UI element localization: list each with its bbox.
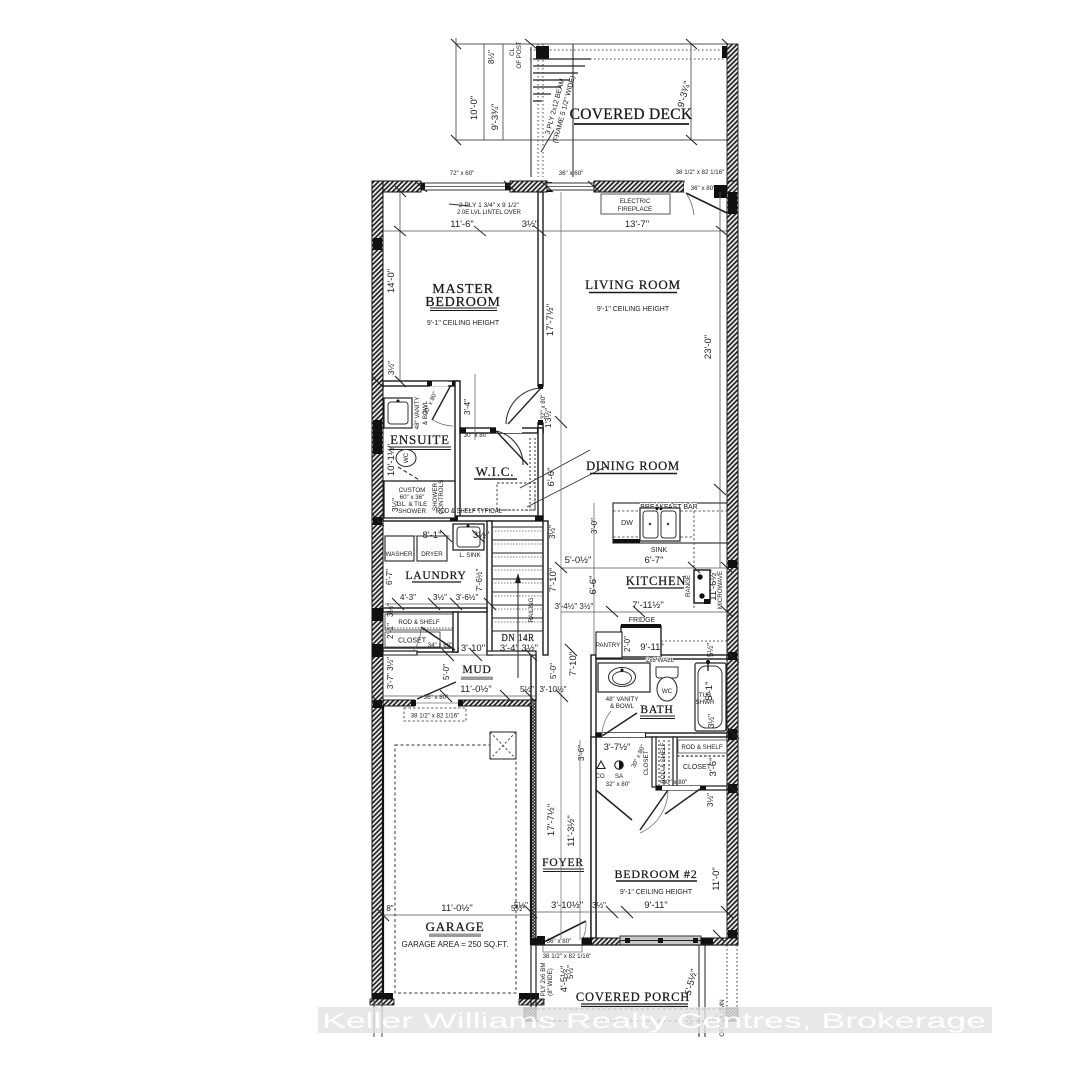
svg-text:MUD: MUD bbox=[462, 664, 491, 676]
svg-text:GARAGE: GARAGE bbox=[426, 919, 485, 934]
svg-text:11'-6": 11'-6" bbox=[450, 219, 474, 230]
svg-text:9'-1" CEILING HEIGHT: 9'-1" CEILING HEIGHT bbox=[597, 306, 670, 313]
svg-text:3'-0": 3'-0" bbox=[590, 518, 599, 534]
svg-text:6'-7": 6'-7" bbox=[385, 569, 394, 585]
svg-text:5'-0": 5'-0" bbox=[549, 663, 558, 679]
svg-text:11'-6½": 11'-6½" bbox=[708, 569, 719, 600]
svg-text:7'-6½": 7'-6½" bbox=[475, 569, 484, 592]
svg-text:6'-7": 6'-7" bbox=[645, 555, 664, 566]
svg-text:SHOWER: SHOWER bbox=[398, 508, 426, 515]
svg-text:17'-7½": 17'-7½" bbox=[546, 804, 557, 836]
svg-text:Keller Williams Realty Centres: Keller Williams Realty Centres, Brokerag… bbox=[322, 1009, 986, 1033]
svg-text:36" x 80": 36" x 80" bbox=[547, 938, 572, 945]
svg-text:DINING ROOM: DINING ROOM bbox=[586, 459, 680, 473]
svg-text:ROD & SHELF: ROD & SHELF bbox=[398, 619, 439, 626]
svg-text:BEDROOM #2: BEDROOM #2 bbox=[614, 867, 697, 881]
svg-text:8½": 8½" bbox=[487, 50, 496, 64]
svg-text:5½": 5½" bbox=[566, 965, 575, 979]
svg-text:CUSTOM: CUSTOM bbox=[399, 487, 426, 494]
svg-text:ELECTRIC: ELECTRIC bbox=[620, 198, 651, 205]
svg-text:5½": 5½" bbox=[706, 643, 715, 657]
svg-text:FRIDGE: FRIDGE bbox=[629, 617, 656, 624]
svg-text:2'-1": 2'-1" bbox=[386, 623, 395, 639]
svg-text:11'-3½": 11'-3½" bbox=[566, 815, 577, 846]
svg-text:CL: CL bbox=[509, 47, 516, 55]
svg-text:FOYER: FOYER bbox=[542, 857, 584, 869]
svg-text:3'-4" 3½": 3'-4" 3½" bbox=[500, 643, 538, 654]
svg-text:6'-6": 6'-6" bbox=[588, 576, 599, 595]
svg-text:2.0E LVL LINTEL OVER: 2.0E LVL LINTEL OVER bbox=[457, 209, 521, 216]
svg-text:LAUNDRY: LAUNDRY bbox=[405, 570, 466, 582]
svg-text:3'-4½" 3½": 3'-4½" 3½" bbox=[555, 602, 594, 611]
svg-text:13'-7": 13'-7" bbox=[625, 219, 649, 230]
svg-text:ENSUITE: ENSUITE bbox=[390, 432, 450, 447]
svg-text:OF POST: OF POST bbox=[516, 41, 523, 68]
svg-text:3½": 3½" bbox=[433, 593, 447, 602]
svg-text:WC: WC bbox=[662, 688, 673, 695]
svg-text:60" x 36": 60" x 36" bbox=[400, 494, 425, 501]
svg-text:11'-0½": 11'-0½" bbox=[460, 684, 491, 695]
svg-text:3'-6½": 3'-6½" bbox=[456, 593, 479, 602]
svg-text:32" x 80": 32" x 80" bbox=[606, 781, 631, 788]
svg-text:4'-3": 4'-3" bbox=[400, 593, 416, 602]
svg-text:7'-10": 7'-10" bbox=[568, 652, 579, 676]
svg-text:3½": 3½" bbox=[522, 219, 539, 230]
svg-text:48" VANITY: 48" VANITY bbox=[414, 397, 421, 430]
svg-text:3'-7½": 3'-7½" bbox=[604, 742, 631, 753]
svg-text:5'-0½": 5'-0½" bbox=[565, 555, 592, 566]
svg-text:3½": 3½" bbox=[592, 901, 606, 910]
svg-text:5'-0": 5'-0" bbox=[442, 664, 451, 680]
svg-text:3'-10½": 3'-10½" bbox=[539, 685, 566, 694]
svg-text:PANTRY: PANTRY bbox=[596, 642, 621, 649]
svg-text:14'-0": 14'-0" bbox=[386, 269, 397, 293]
svg-text:38 1/2" x 82 1/16": 38 1/2" x 82 1/16" bbox=[411, 713, 460, 720]
svg-text:2'-0": 2'-0" bbox=[623, 636, 632, 652]
svg-text:9'-11": 9'-11" bbox=[640, 642, 664, 653]
svg-text:CLOSET: CLOSET bbox=[643, 750, 650, 775]
svg-text:6'-6": 6'-6" bbox=[546, 468, 557, 487]
svg-text:3'-10½": 3'-10½" bbox=[551, 900, 583, 911]
svg-text:8'-1": 8'-1" bbox=[423, 530, 442, 541]
svg-text:4 PLY 2x6 BM: 4 PLY 2x6 BM bbox=[540, 963, 547, 1002]
svg-text:48" VANITY: 48" VANITY bbox=[606, 696, 639, 703]
svg-text:& BOWL: & BOWL bbox=[610, 703, 635, 710]
svg-text:3½": 3½" bbox=[706, 793, 715, 807]
svg-text:FIREPLACE: FIREPLACE bbox=[618, 206, 652, 213]
svg-text:9'-11": 9'-11" bbox=[644, 900, 668, 911]
svg-text:ROD & SHELF: ROD & SHELF bbox=[681, 744, 722, 751]
svg-text:38 1/2" x 82 1/16": 38 1/2" x 82 1/16" bbox=[543, 953, 592, 960]
svg-text:GARAGE AREA = 250 SQ.FT.: GARAGE AREA = 250 SQ.FT. bbox=[402, 940, 509, 949]
svg-text:72" x 60": 72" x 60" bbox=[450, 170, 475, 177]
svg-text:WASHER: WASHER bbox=[386, 551, 413, 558]
svg-text:3½": 3½" bbox=[386, 603, 395, 617]
svg-text:DRYER: DRYER bbox=[421, 551, 443, 558]
svg-text:KITCHEN: KITCHEN bbox=[626, 574, 686, 588]
svg-text:CO: CO bbox=[595, 773, 604, 780]
svg-text:9'-1" CEILING HEIGHT: 9'-1" CEILING HEIGHT bbox=[427, 320, 500, 327]
svg-text:38 1/2" x 82 1/16": 38 1/2" x 82 1/16" bbox=[676, 169, 725, 176]
svg-text:36" x 60": 36" x 60" bbox=[559, 170, 584, 177]
svg-text:9'-1" CEILING HEIGHT: 9'-1" CEILING HEIGHT bbox=[620, 889, 693, 896]
svg-text:30" x 80": 30" x 80" bbox=[464, 432, 489, 439]
svg-text:GL. & TILE: GL. & TILE bbox=[397, 501, 428, 508]
svg-text:ROD & SHELF: ROD & SHELF bbox=[660, 742, 667, 783]
svg-text:RANGE: RANGE bbox=[685, 575, 692, 597]
svg-text:ROD & SHELF TYPICAL: ROD & SHELF TYPICAL bbox=[436, 508, 502, 515]
svg-text:CLOSET: CLOSET bbox=[398, 638, 427, 645]
svg-text:3½": 3½" bbox=[387, 361, 396, 375]
svg-text:COVERED DECK: COVERED DECK bbox=[570, 106, 693, 123]
svg-text:SA: SA bbox=[615, 773, 624, 780]
svg-text:17'-7½": 17'-7½" bbox=[545, 304, 556, 336]
svg-text:11'-0": 11'-0" bbox=[711, 867, 722, 891]
svg-text:LIVING ROOM: LIVING ROOM bbox=[585, 277, 681, 292]
svg-text:9'-3¾": 9'-3¾" bbox=[490, 104, 501, 131]
svg-text:(8" WIDE): (8" WIDE) bbox=[547, 968, 554, 996]
svg-text:8": 8" bbox=[386, 904, 393, 913]
svg-text:1'3½": 1'3½" bbox=[544, 408, 553, 428]
svg-text:10'-0": 10'-0" bbox=[469, 96, 480, 120]
svg-text:BATH: BATH bbox=[640, 704, 673, 716]
svg-text:L. SINK: L. SINK bbox=[459, 552, 481, 559]
svg-text:SINK: SINK bbox=[651, 547, 668, 554]
svg-text:3'-7" 3½": 3'-7" 3½" bbox=[386, 657, 395, 689]
svg-text:3'-6": 3'-6" bbox=[708, 758, 719, 777]
svg-text:5'-1": 5'-1" bbox=[704, 682, 715, 701]
svg-text:3'-4": 3'-4" bbox=[463, 399, 472, 415]
svg-text:DW: DW bbox=[621, 520, 633, 527]
svg-text:7'-10": 7'-10" bbox=[548, 568, 559, 592]
svg-text:W.I.C.: W.I.C. bbox=[476, 464, 515, 479]
svg-text:10'-1½": 10'-1½" bbox=[386, 444, 397, 476]
svg-text:RAILING: RAILING bbox=[528, 597, 535, 622]
svg-text:3½": 3½" bbox=[391, 498, 400, 512]
svg-text:30" x 80": 30" x 80" bbox=[663, 779, 688, 786]
svg-text:3'-6": 3'-6" bbox=[577, 745, 586, 761]
svg-text:5½": 5½" bbox=[511, 904, 525, 913]
svg-text:23'-0": 23'-0" bbox=[703, 335, 714, 359]
svg-text:36" x 80": 36" x 80" bbox=[691, 185, 716, 192]
svg-text:3½": 3½" bbox=[707, 714, 716, 728]
svg-text:COVERED PORCH: COVERED PORCH bbox=[576, 990, 690, 1004]
svg-text:11'-0½": 11'-0½" bbox=[441, 903, 472, 914]
svg-text:WC: WC bbox=[403, 452, 410, 463]
svg-text:3½": 3½" bbox=[548, 525, 557, 539]
